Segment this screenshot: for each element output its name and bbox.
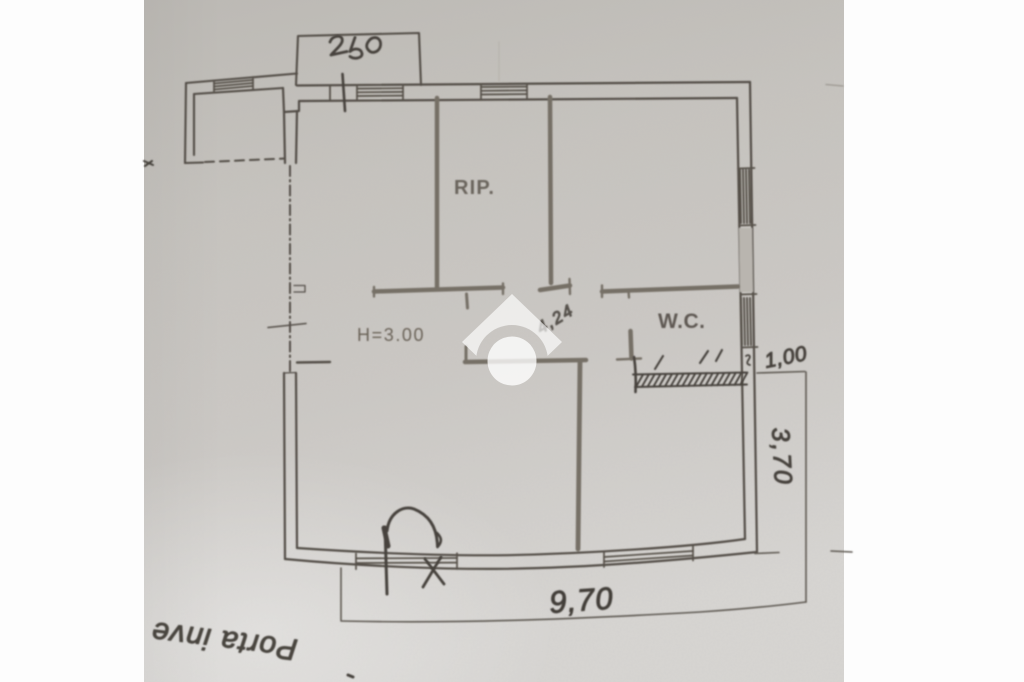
- svg-text:RIP.: RIP.: [454, 177, 495, 199]
- svg-text:3,70: 3,70: [766, 427, 797, 487]
- svg-text:9,70: 9,70: [548, 581, 615, 620]
- svg-text:W.C.: W.C.: [658, 310, 706, 333]
